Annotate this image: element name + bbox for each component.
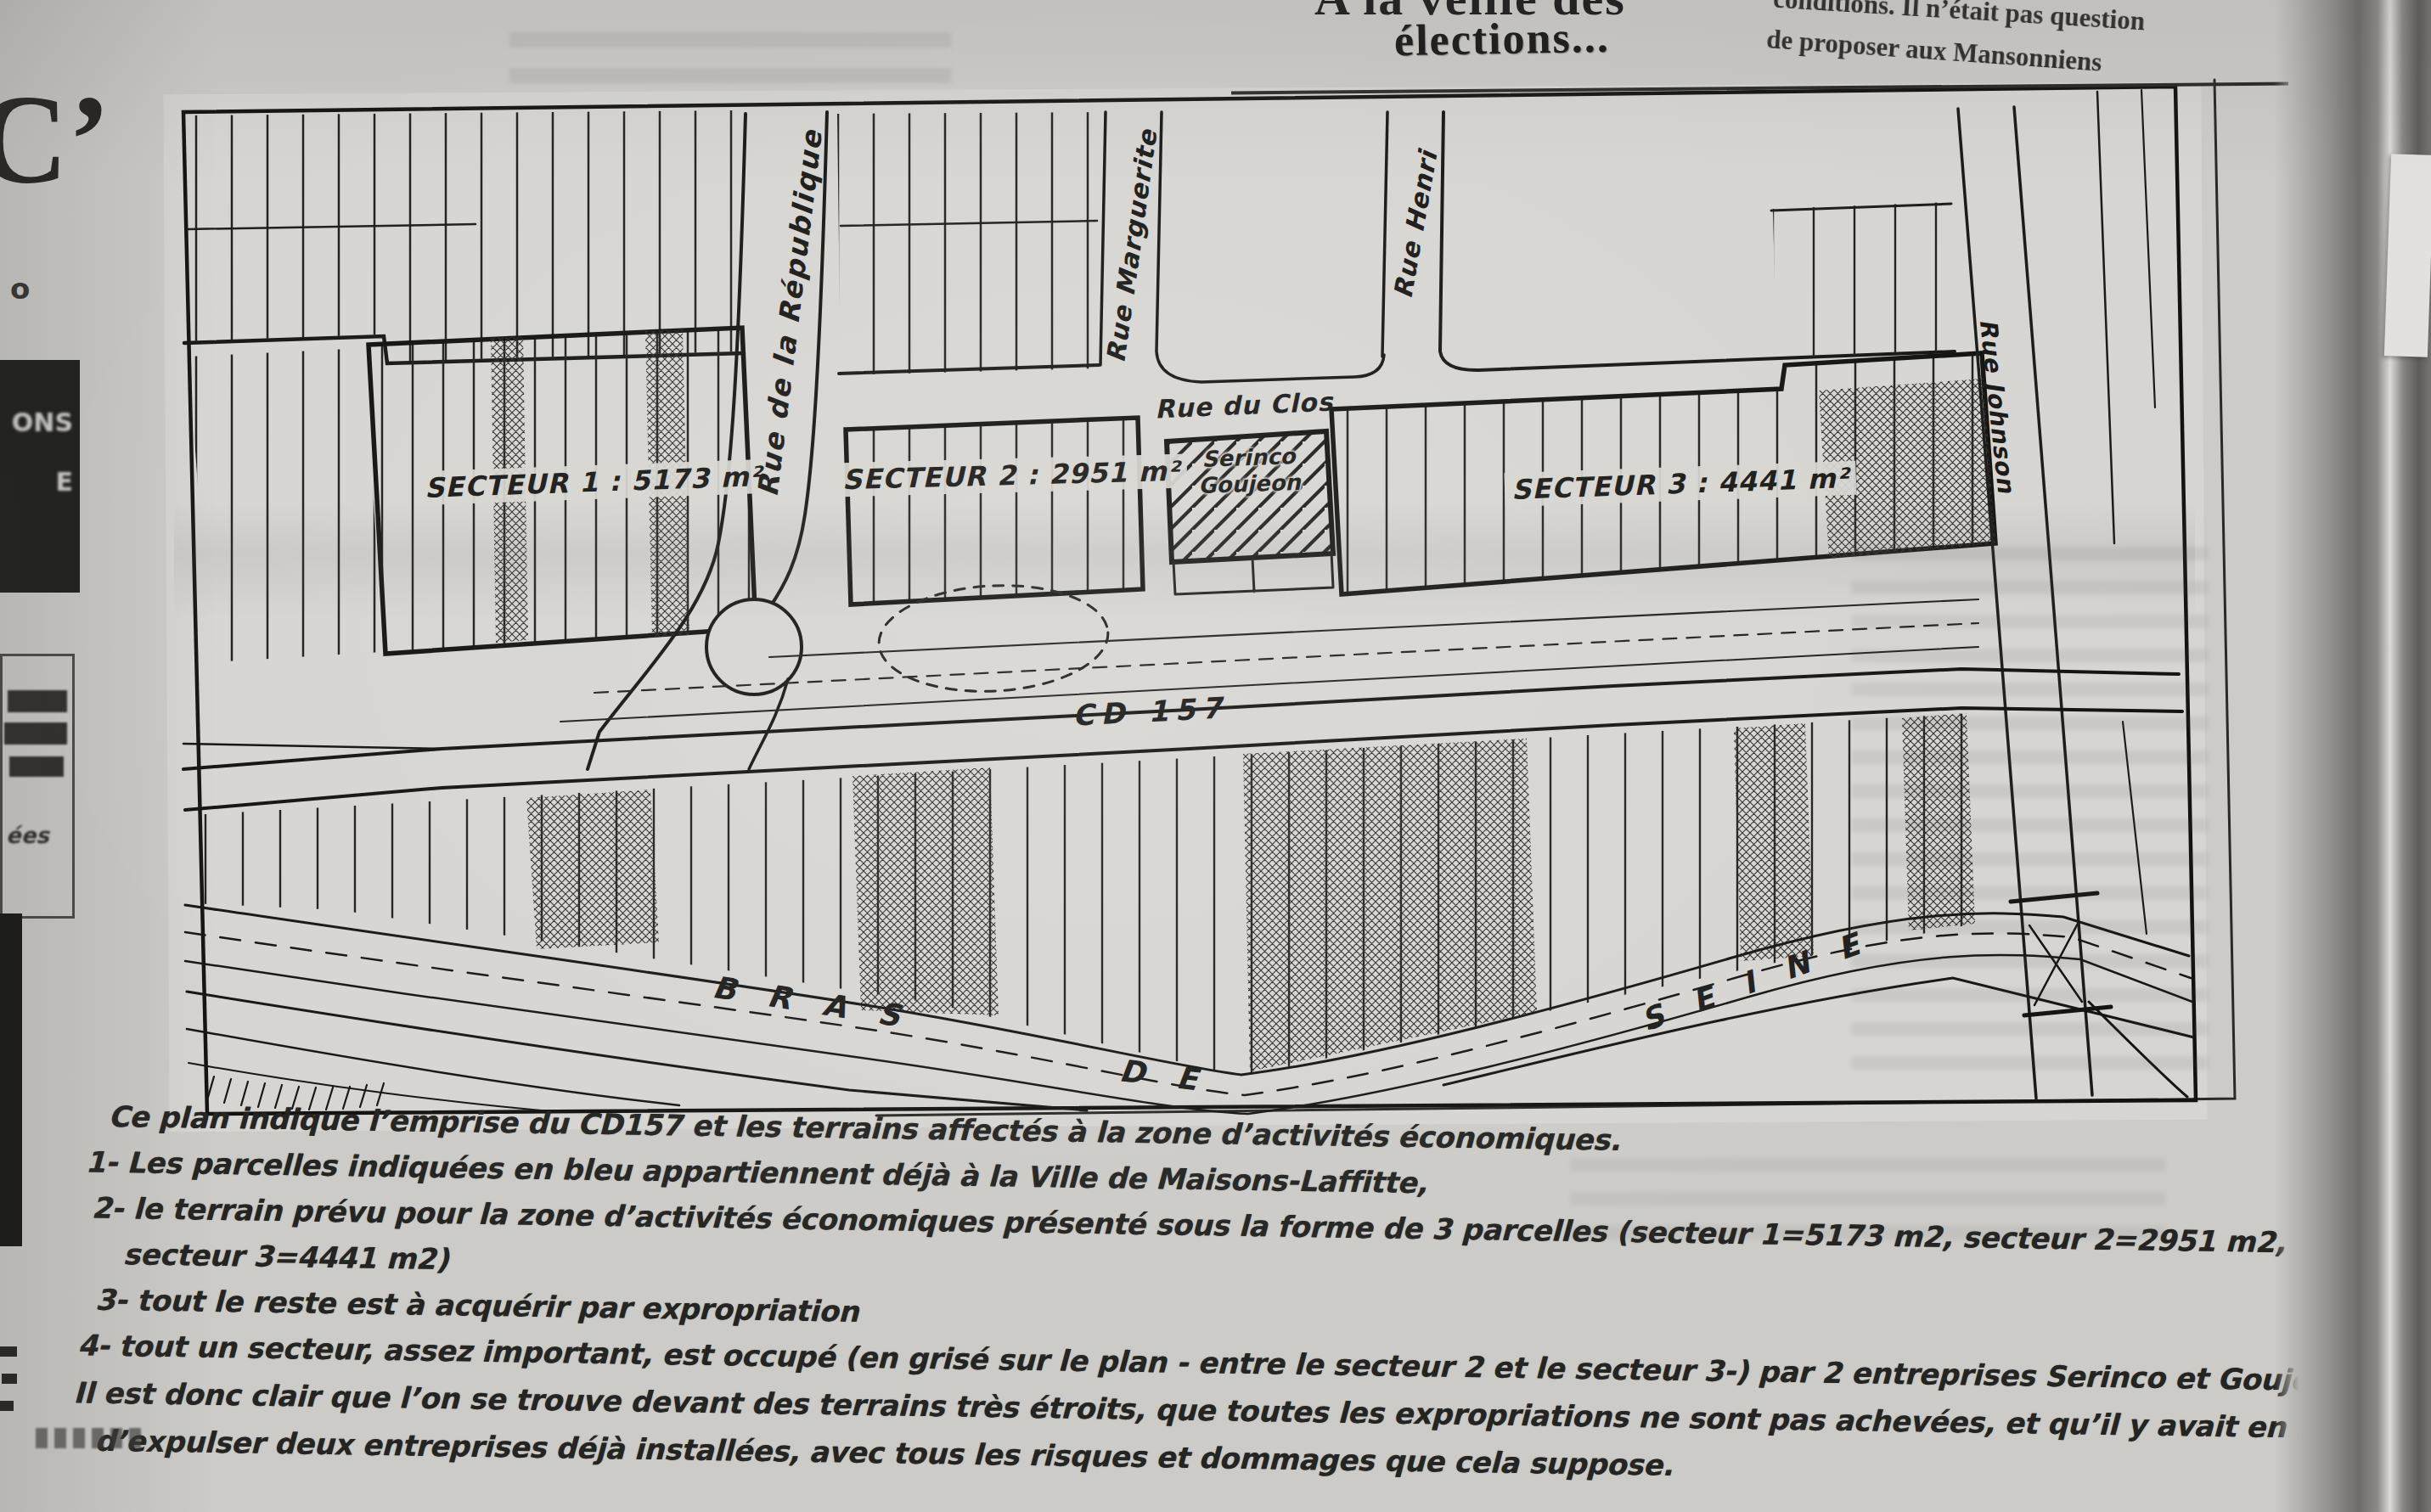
adjacent-column-black-box: ONS E — [0, 360, 80, 593]
sector-2-label: SECTEUR 2 : 2951 m² — [836, 454, 1188, 497]
caption-line: d’expulser deux entreprises déjà install… — [94, 1424, 1673, 1482]
showthrough-texture — [1571, 1138, 2165, 1239]
adjacent-column-box: ées — [0, 654, 75, 919]
right-column-text-line2: de proposer aux Mansonniens — [1765, 24, 2102, 78]
illegible-margin-text — [36, 1428, 141, 1448]
box-text-fragment: ées — [6, 823, 49, 848]
header-rule — [1231, 82, 2288, 95]
street-label-johnson: Rue Johnson — [1972, 299, 2023, 513]
black-box-text-fragment: ONS — [12, 408, 73, 437]
margin-dash — [2, 1374, 17, 1384]
company-box-label: Serinco Goujeon — [1186, 442, 1312, 499]
adjacent-column-partial-letter: C’ — [0, 66, 110, 212]
river-label-de: DE — [1117, 1053, 1232, 1101]
road-label-cd157: CD 157 — [1056, 689, 1245, 733]
headline: élections... — [1394, 12, 1611, 65]
caption-line: 1- Les parcelles indiquées en bleu appar… — [85, 1144, 1427, 1200]
parcels-top-left — [184, 110, 744, 363]
adjacent-column-rule — [0, 913, 22, 1246]
showthrough-texture — [1851, 543, 2208, 1070]
caption-line: secteur 3=4441 m2) — [123, 1237, 449, 1276]
parcels-south-of-road — [190, 713, 1984, 1076]
river-label-bras: BRAS — [710, 970, 934, 1038]
street-henri-lines — [1382, 112, 1955, 370]
street-label-marguerite: Rue Marguerite — [1100, 126, 1163, 365]
next-page-sliver — [2384, 154, 2431, 357]
margin-dash — [0, 1346, 17, 1357]
street-label-republique: Rue de la République — [751, 132, 828, 499]
adjacent-column-small-letter: o — [10, 272, 30, 306]
fold-shadow — [174, 501, 2195, 620]
street-label-henri: Rue Henri — [1386, 138, 1444, 311]
showthrough-texture — [509, 15, 951, 83]
company-name-goujeon: Goujeon — [1187, 469, 1312, 500]
illegible-text-bar — [8, 690, 67, 712]
street-label-clos: Rue du Clos — [1150, 386, 1337, 424]
parcels-republique-marguerite — [837, 112, 1100, 375]
illegible-text-bar — [4, 722, 67, 745]
sector-1-label: SECTEUR 1 : 5173 m² — [417, 459, 769, 505]
margin-dash — [0, 1401, 14, 1411]
caption-line: 3- tout le reste est à acquérir par expr… — [95, 1283, 859, 1329]
parcels-east-of-henri — [1771, 202, 1953, 358]
newspaper-page: A la veille des élections... conditions.… — [0, 0, 2431, 1512]
black-box-text-fragment: E — [56, 467, 74, 497]
illegible-text-bar — [9, 756, 64, 777]
